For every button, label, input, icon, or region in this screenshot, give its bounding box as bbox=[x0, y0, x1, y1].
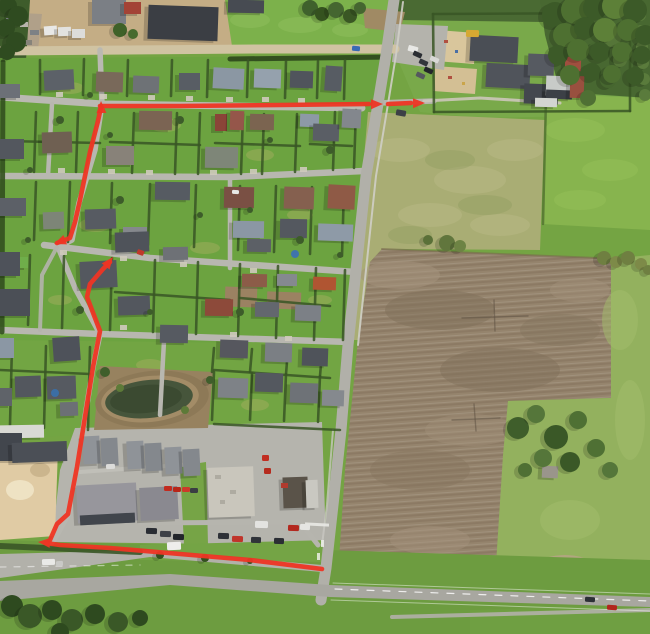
route-line bbox=[388, 103, 411, 104]
vehicle bbox=[182, 487, 190, 492]
pylon-shadow bbox=[494, 300, 495, 331]
building bbox=[205, 299, 233, 316]
vehicle bbox=[232, 536, 243, 542]
aerial-map-image bbox=[0, 0, 650, 634]
tree bbox=[147, 309, 153, 315]
tree bbox=[267, 137, 273, 143]
driveway-pad bbox=[298, 98, 305, 103]
building bbox=[306, 480, 319, 508]
driveway-pad bbox=[58, 168, 65, 173]
driveway-pad bbox=[108, 169, 115, 174]
building bbox=[284, 186, 315, 209]
hedge-line bbox=[433, 14, 434, 112]
lawn-dry-patch bbox=[241, 399, 269, 411]
building bbox=[255, 373, 284, 393]
building bbox=[342, 109, 362, 129]
bright-field-mottle bbox=[545, 118, 605, 142]
vehicle bbox=[167, 542, 181, 550]
field-light-patch bbox=[550, 278, 610, 302]
tree bbox=[27, 167, 33, 173]
building bbox=[0, 289, 30, 316]
roof-unit bbox=[220, 500, 225, 504]
vehicle bbox=[262, 455, 269, 461]
field-top-mottle bbox=[332, 23, 368, 37]
driveway-pad bbox=[186, 96, 193, 101]
vehicle bbox=[251, 537, 261, 543]
building bbox=[327, 184, 355, 209]
tree bbox=[176, 116, 184, 124]
hedge-line bbox=[207, 60, 208, 97]
pond-reeds bbox=[116, 384, 124, 392]
driveway-pad bbox=[300, 167, 307, 172]
building bbox=[302, 348, 329, 367]
building bbox=[147, 5, 218, 41]
hedge-line bbox=[247, 60, 248, 97]
meadow-right-mottle bbox=[615, 380, 645, 460]
building bbox=[212, 67, 244, 90]
driveway-pad bbox=[210, 170, 217, 175]
building bbox=[179, 73, 200, 90]
vehicle bbox=[106, 464, 115, 469]
tree bbox=[247, 207, 253, 213]
tree bbox=[603, 65, 621, 83]
building bbox=[124, 2, 141, 14]
junk-item bbox=[30, 30, 39, 35]
building bbox=[242, 274, 267, 287]
junction-road-mark bbox=[317, 553, 320, 560]
tree bbox=[567, 39, 589, 61]
vehicle bbox=[232, 190, 239, 194]
driveway-pad bbox=[250, 268, 257, 273]
tree bbox=[590, 42, 610, 62]
driveway-pad bbox=[120, 325, 127, 330]
vehicle bbox=[190, 488, 198, 493]
hedge-line bbox=[317, 61, 318, 98]
red-accent-box bbox=[281, 483, 288, 488]
field-dark-patch bbox=[520, 314, 600, 346]
playground-item bbox=[462, 82, 465, 85]
field-dark-patch bbox=[440, 348, 560, 392]
building bbox=[254, 69, 282, 89]
vehicle bbox=[288, 525, 299, 531]
building bbox=[52, 336, 81, 362]
building bbox=[139, 486, 179, 521]
vehicle bbox=[173, 487, 181, 492]
driveway-pad bbox=[262, 97, 269, 102]
driveway-pad bbox=[180, 262, 187, 267]
building bbox=[535, 98, 557, 107]
vehicle bbox=[146, 528, 157, 534]
vehicle bbox=[160, 531, 171, 537]
playground-item bbox=[444, 40, 448, 43]
school-sand-area bbox=[433, 66, 477, 94]
tree bbox=[518, 463, 532, 477]
vehicle bbox=[255, 521, 268, 528]
building bbox=[215, 114, 227, 131]
meadow-mottle-dark bbox=[458, 195, 512, 215]
building bbox=[72, 29, 85, 38]
building bbox=[228, 0, 264, 13]
building bbox=[144, 443, 162, 472]
building bbox=[290, 383, 319, 404]
hedge-line bbox=[434, 111, 630, 112]
building bbox=[106, 146, 134, 165]
building bbox=[542, 466, 559, 479]
vehicle bbox=[585, 597, 595, 603]
vehicle bbox=[173, 534, 184, 540]
trampoline bbox=[51, 389, 59, 397]
building bbox=[60, 402, 78, 417]
driveway-pad bbox=[285, 336, 292, 341]
vehicle bbox=[300, 524, 310, 530]
building bbox=[0, 388, 12, 406]
tree bbox=[18, 604, 42, 628]
building bbox=[220, 340, 249, 359]
roof-unit bbox=[215, 475, 221, 479]
building bbox=[133, 76, 160, 94]
driveway-pad bbox=[250, 169, 257, 174]
tree bbox=[544, 425, 568, 449]
tree bbox=[85, 604, 105, 624]
driveway-pad bbox=[56, 92, 63, 97]
hedge-line bbox=[171, 60, 172, 96]
building bbox=[313, 277, 336, 291]
topedge-hedge bbox=[390, 0, 545, 22]
building bbox=[85, 208, 117, 229]
vehicle bbox=[42, 559, 55, 565]
hedge-below-gravel-road bbox=[230, 57, 388, 59]
playground-item bbox=[448, 76, 452, 79]
playground-item bbox=[455, 50, 458, 53]
building bbox=[0, 84, 20, 98]
pond-reeds bbox=[181, 406, 189, 414]
building bbox=[0, 139, 24, 159]
building bbox=[230, 111, 245, 130]
building bbox=[160, 325, 188, 343]
field-light-patch bbox=[390, 526, 470, 554]
tree bbox=[423, 235, 433, 245]
tree bbox=[569, 411, 587, 429]
building bbox=[12, 441, 68, 463]
driveway-pad bbox=[148, 95, 155, 100]
building bbox=[250, 114, 274, 130]
driveway-pad bbox=[60, 250, 67, 255]
vehicle bbox=[466, 30, 479, 37]
building bbox=[15, 376, 42, 398]
building bbox=[115, 231, 150, 252]
sand-dark-patch bbox=[30, 463, 50, 477]
trampoline bbox=[291, 250, 299, 258]
lawn-dry-patch bbox=[246, 149, 274, 161]
driveway-pad bbox=[100, 94, 107, 99]
vehicle bbox=[607, 605, 617, 611]
hedge-line bbox=[344, 60, 345, 99]
tree bbox=[197, 212, 203, 218]
gravel-farm-road bbox=[0, 49, 395, 51]
tree bbox=[132, 610, 148, 626]
tree bbox=[76, 306, 84, 314]
route-line bbox=[100, 104, 369, 106]
meadow-mottle bbox=[434, 166, 506, 194]
building bbox=[322, 390, 345, 407]
building bbox=[255, 302, 279, 317]
vehicle bbox=[264, 468, 271, 474]
vehicle bbox=[56, 561, 63, 566]
driveway-pad bbox=[120, 256, 127, 261]
aerial-map-viewport bbox=[0, 0, 650, 634]
building bbox=[324, 65, 343, 91]
building bbox=[265, 343, 293, 363]
tree bbox=[587, 439, 605, 457]
tree bbox=[534, 449, 552, 467]
building bbox=[155, 182, 190, 201]
tree bbox=[56, 116, 64, 124]
building bbox=[218, 377, 249, 398]
tree bbox=[100, 367, 110, 377]
driveway-pad bbox=[230, 332, 237, 337]
vehicle bbox=[218, 533, 229, 539]
sand-white-patch bbox=[6, 480, 34, 500]
building bbox=[43, 69, 74, 91]
tree bbox=[454, 240, 466, 252]
building bbox=[0, 338, 14, 358]
hedge-line bbox=[127, 60, 128, 96]
building bbox=[280, 219, 307, 238]
building bbox=[205, 147, 238, 169]
tree bbox=[128, 29, 138, 39]
bright-field-mottle bbox=[554, 190, 606, 210]
building bbox=[139, 111, 172, 131]
building bbox=[43, 212, 65, 230]
building bbox=[277, 274, 297, 286]
field-dark-patch bbox=[385, 290, 495, 330]
bright-field-mottle bbox=[582, 159, 638, 181]
building bbox=[318, 223, 354, 241]
meadow-mottle bbox=[487, 139, 543, 161]
driveway-pad bbox=[226, 97, 233, 102]
building bbox=[96, 72, 124, 93]
hedge-line bbox=[285, 61, 286, 98]
junction-road-mark bbox=[321, 540, 324, 547]
tree bbox=[583, 63, 601, 81]
tree bbox=[87, 92, 93, 98]
hedge-line bbox=[83, 59, 84, 95]
driveway-pad bbox=[146, 170, 153, 175]
lawn-dry-patch bbox=[48, 295, 72, 305]
tree bbox=[626, 67, 644, 85]
building bbox=[182, 449, 200, 477]
building bbox=[224, 187, 254, 209]
tree bbox=[612, 42, 632, 62]
building bbox=[163, 247, 188, 260]
building bbox=[313, 124, 340, 142]
vehicle bbox=[164, 486, 172, 491]
tree bbox=[560, 452, 580, 472]
tree bbox=[108, 612, 128, 632]
building bbox=[42, 131, 73, 153]
tree bbox=[580, 90, 596, 106]
tree bbox=[602, 462, 618, 478]
tree bbox=[107, 132, 113, 138]
building bbox=[100, 438, 118, 467]
meadow-mottle bbox=[470, 214, 530, 236]
building bbox=[0, 198, 26, 216]
tree bbox=[326, 146, 334, 154]
field-dark-patch bbox=[370, 450, 470, 490]
meadow-mottle-dark bbox=[425, 150, 475, 170]
tree bbox=[296, 236, 304, 244]
tree bbox=[337, 252, 343, 258]
building bbox=[0, 252, 20, 276]
building bbox=[47, 376, 77, 400]
meadow-right-mottle bbox=[540, 500, 600, 540]
vehicle bbox=[274, 538, 284, 544]
meadow-mottle bbox=[398, 203, 462, 227]
tree bbox=[236, 308, 244, 316]
tree bbox=[25, 237, 31, 243]
building bbox=[233, 221, 264, 239]
building bbox=[295, 305, 322, 322]
tree bbox=[560, 65, 580, 85]
building bbox=[290, 71, 314, 89]
tree bbox=[527, 405, 545, 423]
building bbox=[247, 239, 271, 252]
building bbox=[469, 35, 518, 63]
meadow-right-mottle bbox=[602, 290, 638, 350]
field-light-patch bbox=[360, 261, 440, 289]
roof-unit bbox=[230, 490, 236, 494]
tree bbox=[354, 2, 366, 14]
tree bbox=[206, 376, 214, 384]
tree bbox=[116, 196, 124, 204]
vehicle bbox=[352, 46, 360, 52]
